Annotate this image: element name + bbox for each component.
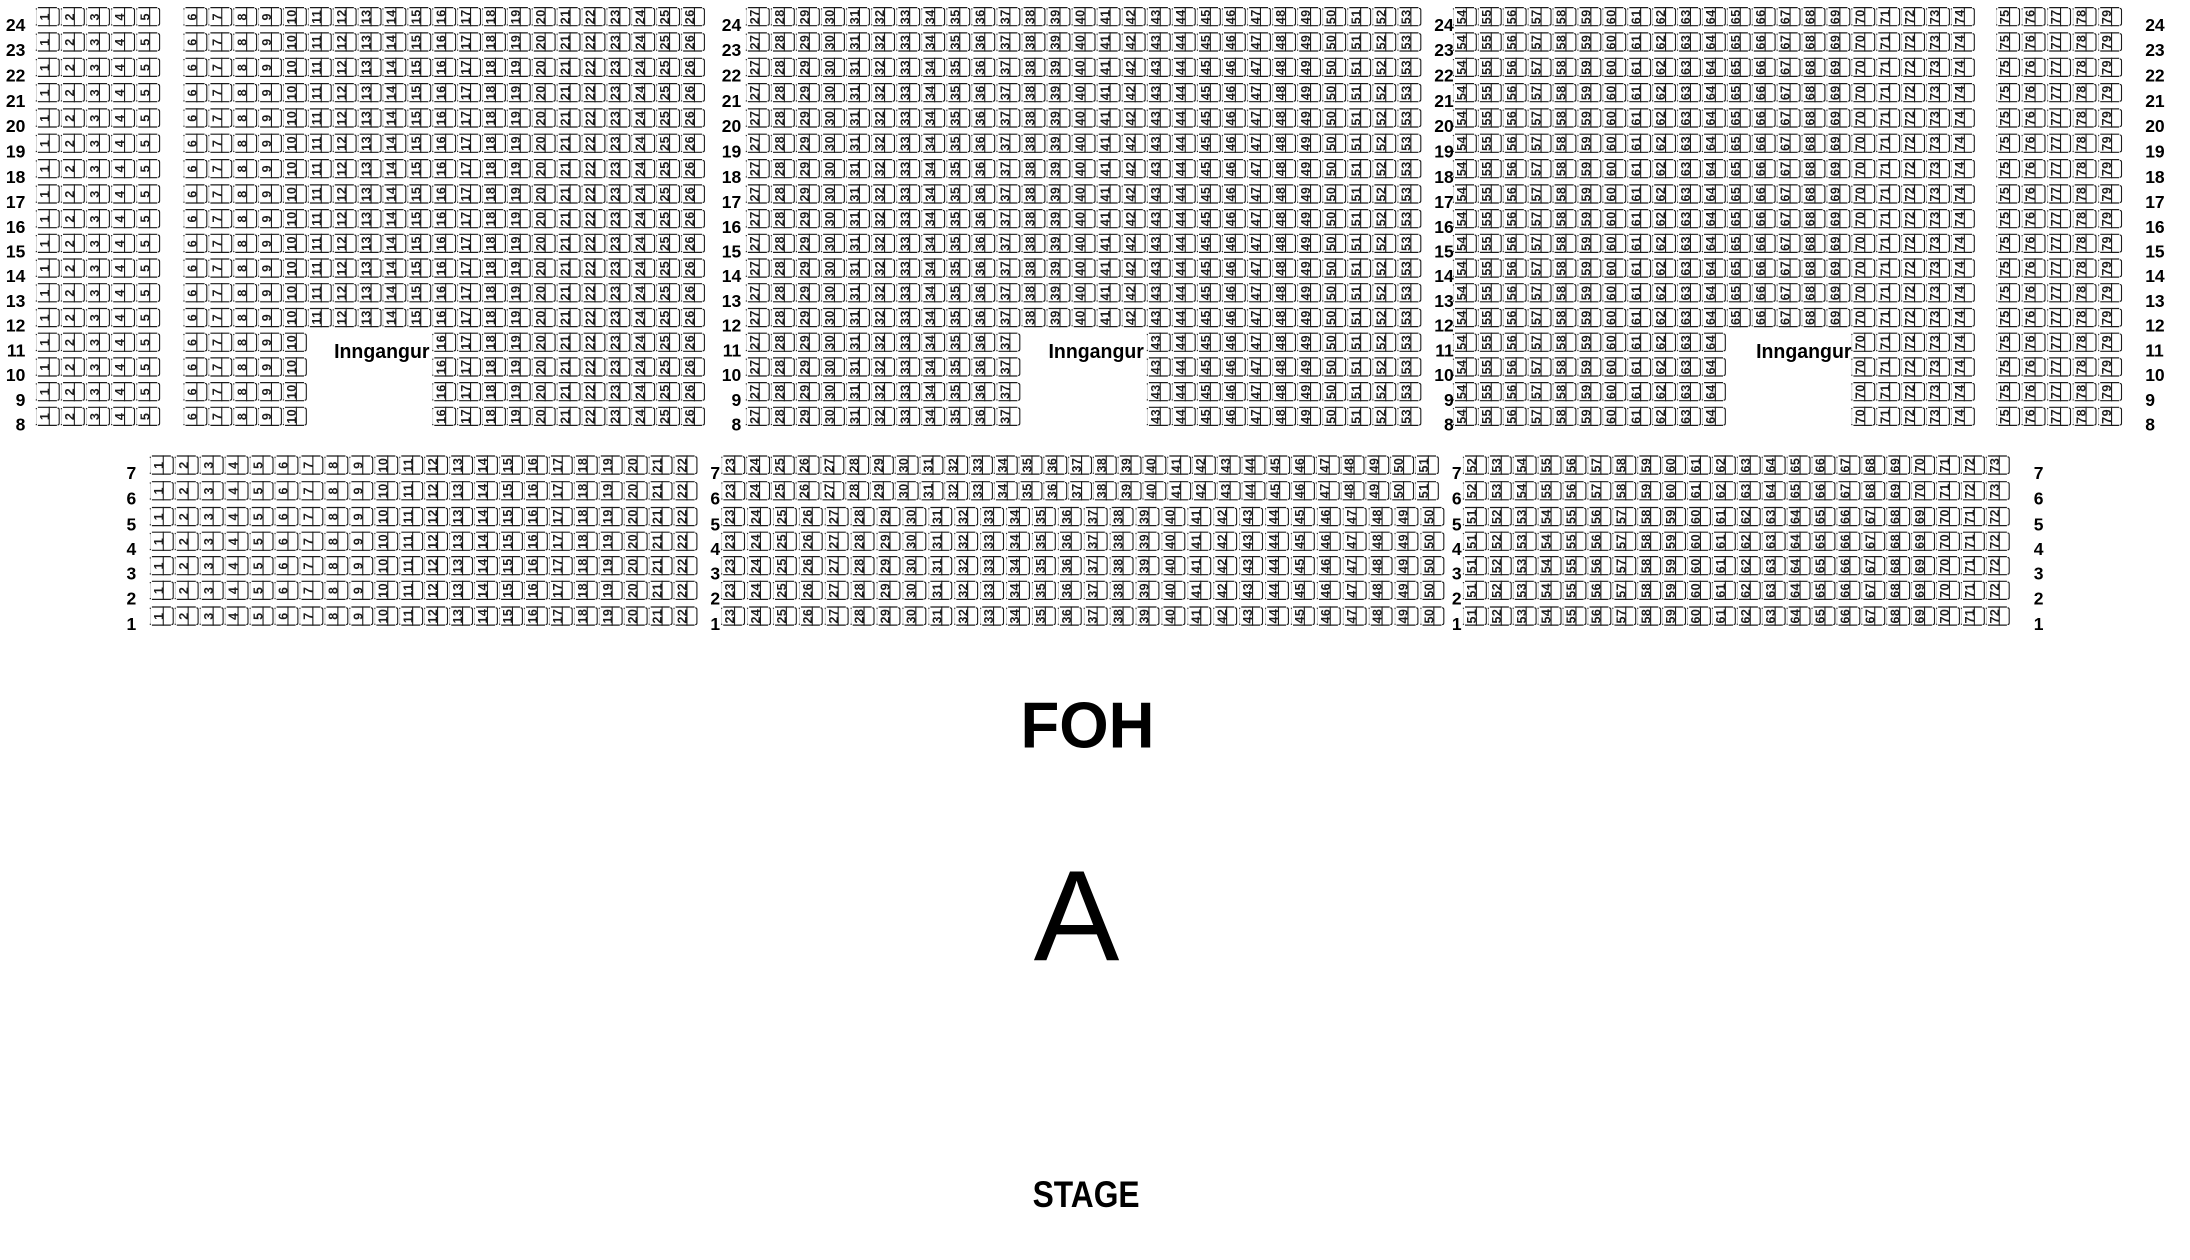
svg-text:34: 34 <box>923 261 937 276</box>
svg-text:69: 69 <box>1829 9 1843 24</box>
svg-text:25: 25 <box>658 211 672 226</box>
svg-text:47: 47 <box>1249 60 1263 75</box>
svg-text:79: 79 <box>2100 211 2114 226</box>
svg-text:78: 78 <box>2075 285 2089 300</box>
svg-text:60: 60 <box>1604 261 1618 276</box>
svg-text:30: 30 <box>823 136 837 151</box>
svg-text:65: 65 <box>1729 35 1743 50</box>
svg-text:31: 31 <box>848 35 862 50</box>
svg-text:63: 63 <box>1679 335 1693 350</box>
svg-text:49: 49 <box>1397 583 1411 598</box>
svg-text:19: 19 <box>509 310 523 325</box>
svg-text:57: 57 <box>1614 558 1628 573</box>
svg-text:21: 21 <box>559 335 573 350</box>
svg-text:15: 15 <box>409 236 423 251</box>
svg-text:17: 17 <box>459 310 473 325</box>
svg-text:24: 24 <box>633 136 647 151</box>
svg-text:16: 16 <box>434 161 448 176</box>
svg-text:62: 62 <box>1654 161 1668 176</box>
svg-text:54: 54 <box>1540 558 1554 573</box>
svg-text:41: 41 <box>1099 187 1113 202</box>
svg-text:49: 49 <box>1367 483 1381 498</box>
svg-text:53: 53 <box>1490 458 1504 473</box>
svg-text:17: 17 <box>459 261 473 276</box>
svg-text:6: 6 <box>277 562 291 569</box>
svg-text:46: 46 <box>1224 136 1238 151</box>
svg-text:48: 48 <box>1371 534 1385 549</box>
svg-text:7: 7 <box>2034 463 2044 483</box>
svg-text:17: 17 <box>6 192 25 212</box>
svg-text:24: 24 <box>749 509 763 524</box>
svg-text:55: 55 <box>1565 609 1579 624</box>
svg-text:46: 46 <box>1293 458 1307 473</box>
svg-text:17: 17 <box>551 483 565 498</box>
svg-text:27: 27 <box>748 384 762 399</box>
svg-text:22: 22 <box>722 66 742 86</box>
svg-text:54: 54 <box>1455 9 1469 24</box>
svg-text:13: 13 <box>451 483 465 498</box>
svg-text:6: 6 <box>186 388 200 395</box>
svg-text:53: 53 <box>1400 285 1414 300</box>
svg-text:21: 21 <box>559 211 573 226</box>
svg-text:67: 67 <box>1863 609 1877 624</box>
svg-text:55: 55 <box>1480 310 1494 325</box>
svg-text:52: 52 <box>1374 211 1388 226</box>
svg-text:68: 68 <box>1804 9 1818 24</box>
svg-text:72: 72 <box>1903 85 1917 100</box>
svg-text:3: 3 <box>88 140 102 147</box>
svg-text:22: 22 <box>584 161 598 176</box>
svg-text:9: 9 <box>731 390 741 410</box>
svg-text:4: 4 <box>227 487 241 494</box>
svg-text:57: 57 <box>1614 609 1628 624</box>
svg-text:10: 10 <box>376 609 390 624</box>
svg-text:19: 19 <box>509 187 523 202</box>
svg-text:12: 12 <box>335 187 349 202</box>
svg-text:47: 47 <box>1249 9 1263 24</box>
svg-text:71: 71 <box>1878 384 1892 399</box>
svg-text:5: 5 <box>138 215 152 222</box>
svg-text:66: 66 <box>1754 285 1768 300</box>
svg-text:52: 52 <box>1374 236 1388 251</box>
svg-text:44: 44 <box>1174 335 1188 350</box>
svg-text:36: 36 <box>973 60 987 75</box>
svg-text:30: 30 <box>823 261 837 276</box>
svg-text:59: 59 <box>1664 583 1678 598</box>
svg-text:12: 12 <box>335 9 349 24</box>
svg-text:75: 75 <box>1998 261 2012 276</box>
svg-text:61: 61 <box>1629 9 1643 24</box>
svg-text:46: 46 <box>1224 111 1238 126</box>
svg-text:18: 18 <box>484 335 498 350</box>
svg-text:43: 43 <box>1219 483 1233 498</box>
svg-text:49: 49 <box>1299 111 1313 126</box>
svg-text:25: 25 <box>658 285 672 300</box>
svg-text:62: 62 <box>1654 409 1668 424</box>
svg-text:39: 39 <box>1049 111 1063 126</box>
svg-text:15: 15 <box>501 458 515 473</box>
svg-text:31: 31 <box>930 583 944 598</box>
svg-text:70: 70 <box>1913 458 1927 473</box>
svg-text:53: 53 <box>1400 236 1414 251</box>
svg-text:69: 69 <box>1829 111 1843 126</box>
svg-text:53: 53 <box>1400 161 1414 176</box>
svg-text:69: 69 <box>1829 261 1843 276</box>
svg-text:31: 31 <box>848 9 862 24</box>
svg-text:74: 74 <box>1953 310 1967 325</box>
svg-text:79: 79 <box>2100 285 2114 300</box>
svg-text:36: 36 <box>973 161 987 176</box>
svg-text:7: 7 <box>302 487 316 494</box>
svg-text:12: 12 <box>1434 316 1454 336</box>
svg-text:53: 53 <box>1400 211 1414 226</box>
svg-text:18: 18 <box>484 136 498 151</box>
svg-text:75: 75 <box>1998 161 2012 176</box>
svg-text:61: 61 <box>1714 558 1728 573</box>
svg-text:58: 58 <box>1555 187 1569 202</box>
svg-text:29: 29 <box>798 187 812 202</box>
svg-text:45: 45 <box>1199 236 1213 251</box>
svg-text:72: 72 <box>1903 161 1917 176</box>
svg-text:9: 9 <box>260 190 274 197</box>
svg-text:76: 76 <box>2024 9 2038 24</box>
svg-text:7: 7 <box>302 587 316 594</box>
svg-text:67: 67 <box>1863 534 1877 549</box>
svg-text:40: 40 <box>1145 458 1159 473</box>
svg-text:57: 57 <box>1530 161 1544 176</box>
svg-text:18: 18 <box>484 9 498 24</box>
svg-text:8: 8 <box>16 415 26 435</box>
svg-text:1: 1 <box>1452 614 1462 634</box>
svg-text:54: 54 <box>1455 384 1469 399</box>
svg-text:72: 72 <box>1988 558 2002 573</box>
svg-text:16: 16 <box>722 217 742 237</box>
svg-text:70: 70 <box>1853 85 1867 100</box>
svg-text:5: 5 <box>710 515 720 535</box>
svg-text:58: 58 <box>1614 458 1628 473</box>
svg-text:48: 48 <box>1371 609 1385 624</box>
svg-text:27: 27 <box>823 458 837 473</box>
svg-text:3: 3 <box>88 114 102 121</box>
svg-text:15: 15 <box>409 85 423 100</box>
svg-text:9: 9 <box>260 240 274 247</box>
svg-text:25: 25 <box>775 558 789 573</box>
svg-text:35: 35 <box>948 187 962 202</box>
svg-text:40: 40 <box>1164 609 1178 624</box>
svg-text:35: 35 <box>1034 558 1048 573</box>
svg-text:4: 4 <box>113 388 127 395</box>
svg-text:19: 19 <box>509 161 523 176</box>
svg-text:71: 71 <box>1878 85 1892 100</box>
svg-text:2: 2 <box>63 240 77 247</box>
svg-text:30: 30 <box>823 310 837 325</box>
svg-text:68: 68 <box>1863 458 1877 473</box>
svg-text:37: 37 <box>999 85 1013 100</box>
svg-text:50: 50 <box>1324 60 1338 75</box>
svg-text:17: 17 <box>459 187 473 202</box>
svg-text:32: 32 <box>873 187 887 202</box>
svg-text:54: 54 <box>1455 161 1469 176</box>
svg-text:36: 36 <box>973 360 987 375</box>
svg-text:43: 43 <box>1149 35 1163 50</box>
svg-text:36: 36 <box>1045 458 1059 473</box>
svg-text:71: 71 <box>1878 310 1892 325</box>
svg-text:20: 20 <box>626 483 640 498</box>
svg-text:38: 38 <box>1024 187 1038 202</box>
svg-text:52: 52 <box>1374 35 1388 50</box>
svg-text:27: 27 <box>748 409 762 424</box>
svg-text:29: 29 <box>798 161 812 176</box>
svg-text:8: 8 <box>235 140 249 147</box>
svg-text:49: 49 <box>1397 534 1411 549</box>
svg-text:71: 71 <box>1963 583 1977 598</box>
svg-text:68: 68 <box>1804 310 1818 325</box>
svg-text:58: 58 <box>1555 384 1569 399</box>
svg-text:63: 63 <box>1764 583 1778 598</box>
svg-text:9: 9 <box>260 314 274 321</box>
svg-text:75: 75 <box>1998 409 2012 424</box>
svg-text:38: 38 <box>1024 35 1038 50</box>
svg-text:36: 36 <box>1060 558 1074 573</box>
svg-text:68: 68 <box>1804 236 1818 251</box>
svg-text:33: 33 <box>898 85 912 100</box>
svg-text:45: 45 <box>1199 211 1213 226</box>
svg-text:43: 43 <box>1149 136 1163 151</box>
svg-text:73: 73 <box>1928 9 1942 24</box>
svg-text:36: 36 <box>1060 609 1074 624</box>
svg-text:7: 7 <box>210 240 224 247</box>
svg-text:18: 18 <box>484 161 498 176</box>
svg-text:39: 39 <box>1049 85 1063 100</box>
svg-text:25: 25 <box>658 111 672 126</box>
svg-text:65: 65 <box>1729 310 1743 325</box>
svg-text:79: 79 <box>2100 136 2114 151</box>
svg-text:66: 66 <box>1754 9 1768 24</box>
svg-text:72: 72 <box>1903 285 1917 300</box>
svg-text:46: 46 <box>1224 285 1238 300</box>
svg-text:53: 53 <box>1515 583 1529 598</box>
svg-text:18: 18 <box>484 85 498 100</box>
svg-text:57: 57 <box>1530 111 1544 126</box>
svg-text:62: 62 <box>1739 509 1753 524</box>
svg-text:11: 11 <box>401 484 415 498</box>
svg-text:22: 22 <box>584 285 598 300</box>
svg-text:64: 64 <box>1704 136 1718 151</box>
svg-text:51: 51 <box>1349 409 1363 424</box>
svg-text:63: 63 <box>1679 236 1693 251</box>
svg-text:45: 45 <box>1199 111 1213 126</box>
svg-text:26: 26 <box>683 187 697 202</box>
svg-text:8: 8 <box>235 264 249 271</box>
svg-text:1: 1 <box>38 240 52 247</box>
svg-text:56: 56 <box>1505 335 1519 350</box>
svg-text:65: 65 <box>1729 187 1743 202</box>
svg-text:22: 22 <box>584 60 598 75</box>
svg-text:22: 22 <box>676 509 690 524</box>
svg-text:20: 20 <box>534 9 548 24</box>
svg-text:15: 15 <box>722 242 742 262</box>
svg-text:58: 58 <box>1555 161 1569 176</box>
svg-text:15: 15 <box>6 242 26 262</box>
svg-text:14: 14 <box>476 583 490 598</box>
svg-text:75: 75 <box>1998 9 2012 24</box>
svg-text:23: 23 <box>609 9 623 24</box>
svg-text:47: 47 <box>1249 211 1263 226</box>
svg-text:64: 64 <box>1704 111 1718 126</box>
svg-text:2: 2 <box>63 388 77 395</box>
svg-text:31: 31 <box>848 285 862 300</box>
svg-text:19: 19 <box>601 609 615 624</box>
svg-text:12: 12 <box>335 310 349 325</box>
svg-text:2: 2 <box>710 588 720 608</box>
svg-text:22: 22 <box>584 236 598 251</box>
svg-text:40: 40 <box>1074 136 1088 151</box>
svg-text:58: 58 <box>1555 9 1569 24</box>
svg-text:33: 33 <box>898 310 912 325</box>
svg-text:Inngangur: Inngangur <box>334 341 430 363</box>
svg-text:77: 77 <box>2049 35 2063 50</box>
svg-text:31: 31 <box>848 335 862 350</box>
svg-text:11: 11 <box>310 311 324 325</box>
svg-text:7: 7 <box>210 64 224 71</box>
svg-text:61: 61 <box>1629 285 1643 300</box>
svg-text:22: 22 <box>6 66 26 86</box>
svg-text:18: 18 <box>484 35 498 50</box>
svg-text:9: 9 <box>351 538 365 545</box>
svg-text:78: 78 <box>2075 187 2089 202</box>
svg-text:39: 39 <box>1049 211 1063 226</box>
svg-text:43: 43 <box>1149 360 1163 375</box>
svg-text:1: 1 <box>38 314 52 321</box>
svg-text:75: 75 <box>1998 211 2012 226</box>
svg-text:49: 49 <box>1299 35 1313 50</box>
svg-text:38: 38 <box>1024 211 1038 226</box>
svg-text:50: 50 <box>1324 161 1338 176</box>
svg-text:23: 23 <box>609 111 623 126</box>
svg-text:58: 58 <box>1639 558 1653 573</box>
svg-text:49: 49 <box>1299 310 1313 325</box>
svg-text:32: 32 <box>873 261 887 276</box>
svg-text:10: 10 <box>285 35 299 50</box>
svg-text:67: 67 <box>1839 458 1853 473</box>
svg-text:32: 32 <box>873 236 887 251</box>
svg-text:10: 10 <box>285 111 299 126</box>
svg-text:11: 11 <box>401 510 415 524</box>
svg-text:9: 9 <box>260 140 274 147</box>
svg-text:75: 75 <box>1998 111 2012 126</box>
svg-text:54: 54 <box>1455 310 1469 325</box>
svg-text:53: 53 <box>1400 60 1414 75</box>
svg-text:5: 5 <box>252 487 266 494</box>
svg-text:37: 37 <box>999 35 1013 50</box>
svg-text:4: 4 <box>113 240 127 247</box>
svg-text:54: 54 <box>1455 360 1469 375</box>
svg-text:68: 68 <box>1863 483 1877 498</box>
svg-text:63: 63 <box>1679 60 1693 75</box>
svg-text:69: 69 <box>1913 558 1927 573</box>
svg-text:34: 34 <box>923 9 937 24</box>
svg-text:41: 41 <box>1099 85 1113 100</box>
svg-text:56: 56 <box>1505 261 1519 276</box>
svg-text:22: 22 <box>584 85 598 100</box>
svg-text:67: 67 <box>1779 85 1793 100</box>
svg-text:54: 54 <box>1455 187 1469 202</box>
svg-text:16: 16 <box>526 609 540 624</box>
svg-text:15: 15 <box>409 35 423 50</box>
svg-text:29: 29 <box>798 360 812 375</box>
svg-text:39: 39 <box>1049 35 1063 50</box>
svg-text:62: 62 <box>1654 335 1668 350</box>
svg-text:43: 43 <box>1149 236 1163 251</box>
svg-text:44: 44 <box>1174 35 1188 50</box>
svg-text:6: 6 <box>186 413 200 420</box>
svg-text:78: 78 <box>2075 409 2089 424</box>
svg-text:28: 28 <box>773 310 787 325</box>
svg-text:68: 68 <box>1888 609 1902 624</box>
svg-text:12: 12 <box>426 609 440 624</box>
svg-text:34: 34 <box>923 187 937 202</box>
svg-text:36: 36 <box>973 111 987 126</box>
svg-text:22: 22 <box>584 111 598 126</box>
svg-text:53: 53 <box>1400 409 1414 424</box>
svg-text:12: 12 <box>2145 316 2165 336</box>
svg-text:9: 9 <box>260 114 274 121</box>
svg-text:11: 11 <box>310 286 324 300</box>
svg-text:73: 73 <box>1928 310 1942 325</box>
svg-text:17: 17 <box>459 111 473 126</box>
svg-text:21: 21 <box>651 458 665 473</box>
svg-text:36: 36 <box>973 310 987 325</box>
svg-text:17: 17 <box>459 85 473 100</box>
svg-text:29: 29 <box>798 261 812 276</box>
svg-text:23: 23 <box>723 534 737 549</box>
svg-text:64: 64 <box>1704 384 1718 399</box>
svg-text:33: 33 <box>898 161 912 176</box>
svg-text:60: 60 <box>1604 384 1618 399</box>
svg-text:68: 68 <box>1804 161 1818 176</box>
svg-text:71: 71 <box>1878 335 1892 350</box>
svg-text:42: 42 <box>1215 558 1229 573</box>
svg-text:54: 54 <box>1540 534 1554 549</box>
svg-text:79: 79 <box>2100 360 2114 375</box>
svg-text:47: 47 <box>1249 236 1263 251</box>
svg-text:5: 5 <box>252 587 266 594</box>
svg-text:23: 23 <box>723 483 737 498</box>
svg-text:44: 44 <box>1174 187 1188 202</box>
svg-text:9: 9 <box>351 562 365 569</box>
svg-text:19: 19 <box>509 35 523 50</box>
svg-text:22: 22 <box>676 609 690 624</box>
svg-text:56: 56 <box>1505 136 1519 151</box>
svg-text:68: 68 <box>1804 35 1818 50</box>
svg-text:45: 45 <box>1199 360 1213 375</box>
svg-text:62: 62 <box>1654 111 1668 126</box>
svg-text:58: 58 <box>1555 60 1569 75</box>
svg-text:61: 61 <box>1714 609 1728 624</box>
svg-text:46: 46 <box>1224 384 1238 399</box>
svg-text:71: 71 <box>1963 558 1977 573</box>
svg-text:67: 67 <box>1779 35 1793 50</box>
svg-text:43: 43 <box>1149 335 1163 350</box>
svg-text:39: 39 <box>1120 483 1134 498</box>
svg-text:45: 45 <box>1199 285 1213 300</box>
svg-text:52: 52 <box>1374 335 1388 350</box>
svg-text:23: 23 <box>723 609 737 624</box>
svg-text:40: 40 <box>1074 111 1088 126</box>
svg-text:34: 34 <box>923 136 937 151</box>
svg-text:48: 48 <box>1274 187 1288 202</box>
svg-text:45: 45 <box>1199 35 1213 50</box>
